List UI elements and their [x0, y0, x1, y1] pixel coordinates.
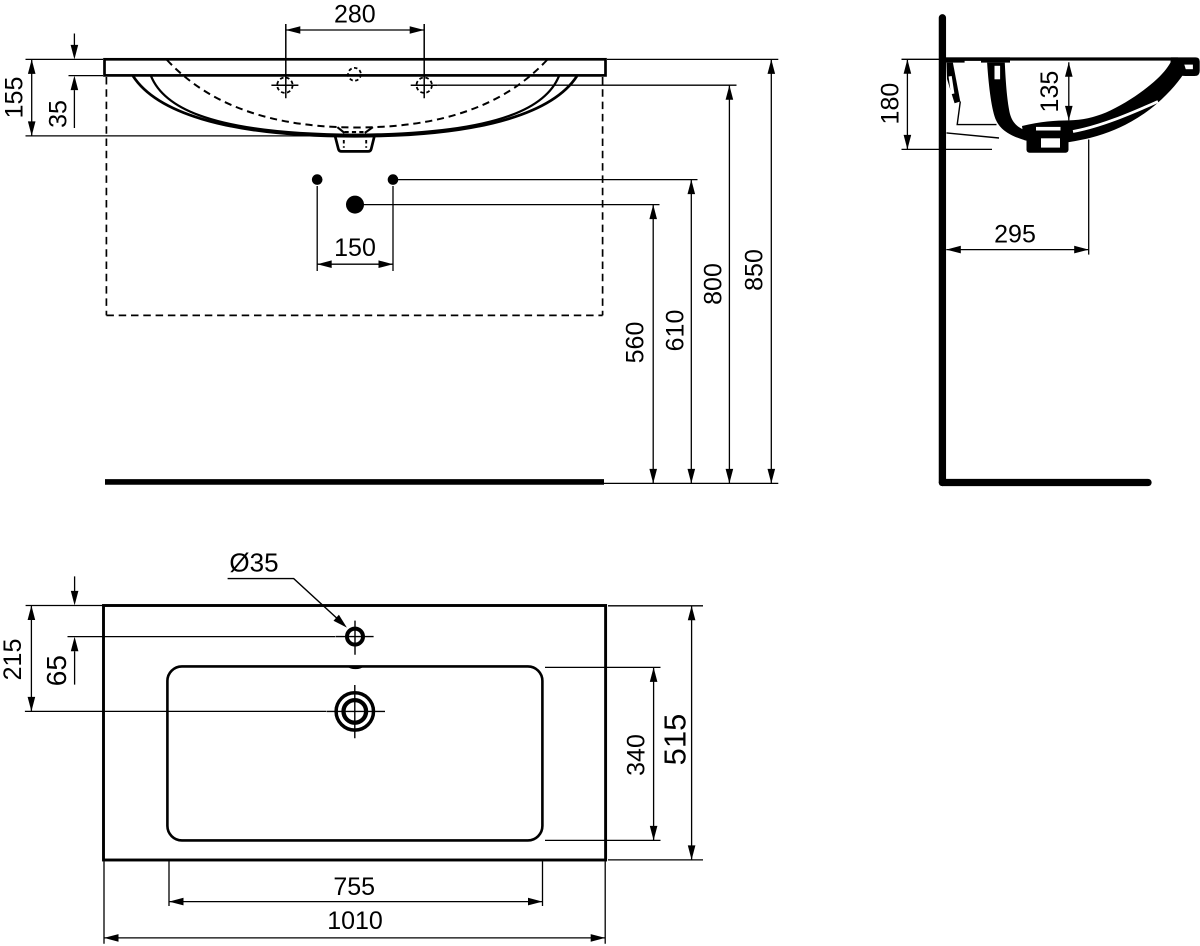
svg-text:515: 515: [657, 714, 692, 766]
svg-text:135: 135: [1036, 71, 1064, 113]
svg-text:150: 150: [334, 234, 376, 262]
svg-text:215: 215: [0, 639, 27, 681]
svg-text:180: 180: [877, 83, 905, 125]
svg-text:340: 340: [623, 734, 651, 776]
svg-text:800: 800: [699, 263, 727, 305]
svg-text:Ø35: Ø35: [229, 548, 278, 578]
svg-text:280: 280: [334, 1, 376, 29]
svg-text:1010: 1010: [327, 907, 383, 935]
svg-text:610: 610: [661, 310, 689, 352]
svg-text:65: 65: [41, 655, 72, 686]
svg-text:155: 155: [1, 77, 29, 119]
svg-text:295: 295: [994, 220, 1036, 248]
svg-text:35: 35: [44, 100, 72, 128]
svg-text:560: 560: [621, 322, 649, 364]
svg-text:850: 850: [741, 249, 769, 291]
svg-text:755: 755: [333, 873, 375, 901]
